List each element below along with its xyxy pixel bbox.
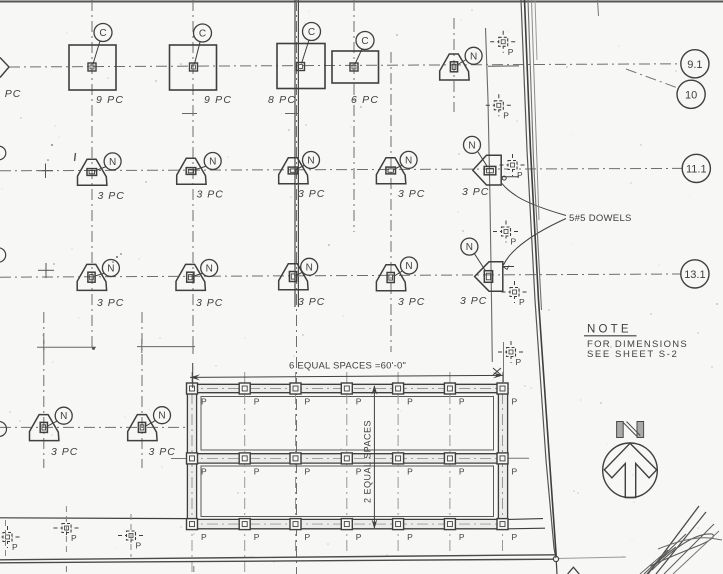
svg-text:5#5 DOWELS: 5#5 DOWELS [569, 213, 632, 224]
svg-text:9 PC: 9 PC [0, 88, 21, 100]
svg-text:P: P [201, 532, 207, 542]
svg-text:N: N [209, 157, 216, 168]
svg-text:3 PC: 3 PC [298, 188, 325, 200]
svg-text:P: P [459, 397, 465, 407]
svg-text:C: C [199, 29, 206, 40]
svg-text:P: P [511, 237, 517, 247]
svg-text:13.1: 13.1 [684, 269, 705, 281]
svg-text:P: P [503, 110, 509, 120]
svg-text:N: N [466, 242, 473, 253]
svg-text:C: C [99, 28, 106, 39]
svg-text:N: N [306, 262, 313, 273]
svg-text:P: P [356, 466, 362, 476]
svg-text:P: P [71, 533, 77, 543]
svg-text:N: N [158, 411, 165, 422]
svg-text:C: C [361, 36, 368, 47]
svg-text:3 PC: 3 PC [149, 446, 176, 458]
svg-text:3 PC: 3 PC [98, 190, 125, 202]
svg-text:P: P [459, 532, 465, 542]
svg-text:N: N [107, 264, 114, 275]
svg-text:3 PC: 3 PC [398, 296, 425, 308]
svg-text:P: P [407, 532, 413, 542]
svg-text:P: P [516, 357, 522, 367]
svg-text:P: P [519, 297, 525, 307]
svg-text:N: N [405, 261, 412, 272]
svg-text:SEE SHEET S-2: SEE SHEET S-2 [587, 349, 678, 360]
svg-text:N: N [470, 51, 477, 62]
svg-text:P: P [136, 541, 142, 551]
svg-text:P: P [512, 532, 518, 542]
svg-text:N: N [206, 264, 213, 275]
svg-text:3 PC: 3 PC [196, 297, 223, 309]
svg-text:P: P [254, 397, 260, 407]
svg-text:C: C [308, 27, 315, 38]
svg-text:P: P [356, 532, 362, 542]
svg-text:P: P [12, 542, 18, 552]
svg-text:3 PC: 3 PC [398, 188, 425, 200]
svg-text:P: P [305, 466, 311, 476]
svg-text:9.1: 9.1 [687, 59, 702, 71]
svg-text:9 PC: 9 PC [96, 94, 124, 106]
svg-text:P: P [512, 466, 518, 476]
svg-text:P: P [407, 466, 413, 476]
svg-text:10: 10 [685, 89, 697, 101]
svg-text:N: N [405, 155, 412, 166]
svg-text:N: N [60, 411, 67, 422]
svg-text:3 PC: 3 PC [197, 189, 224, 201]
svg-text:3 PC: 3 PC [298, 296, 325, 308]
svg-text:P: P [201, 466, 207, 476]
svg-text:2 EQUAL SPACES: 2 EQUAL SPACES [363, 420, 373, 503]
svg-text:FOR DIMENSIONS: FOR DIMENSIONS [587, 339, 688, 350]
svg-text:N: N [109, 157, 116, 168]
svg-text:P: P [407, 397, 413, 407]
svg-text:P: P [459, 466, 465, 476]
svg-text:6 PC: 6 PC [351, 94, 379, 106]
svg-text:P: P [508, 47, 514, 57]
svg-text:P: P [254, 532, 260, 542]
svg-text:P: P [517, 170, 523, 180]
svg-text:P: P [356, 397, 362, 407]
svg-text:P: P [305, 397, 311, 407]
svg-text:P: P [201, 397, 207, 407]
svg-text:P: P [512, 397, 518, 407]
svg-text:6 EQUAL SPACES =60'-0": 6 EQUAL SPACES =60'-0" [289, 361, 406, 372]
svg-text:3 PC: 3 PC [462, 186, 489, 198]
svg-text:N: N [468, 140, 475, 151]
svg-text:N: N [307, 156, 314, 167]
svg-text:P: P [305, 532, 311, 542]
svg-text:8 PC: 8 PC [268, 94, 296, 106]
svg-text:NOTE: NOTE [587, 324, 632, 336]
svg-text:P: P [254, 466, 260, 476]
svg-text:3 PC: 3 PC [51, 446, 78, 458]
svg-text:3 PC: 3 PC [460, 295, 487, 307]
svg-text:9 PC: 9 PC [204, 94, 232, 106]
svg-text:11.1: 11.1 [686, 163, 707, 175]
svg-text:3 PC: 3 PC [97, 297, 124, 309]
